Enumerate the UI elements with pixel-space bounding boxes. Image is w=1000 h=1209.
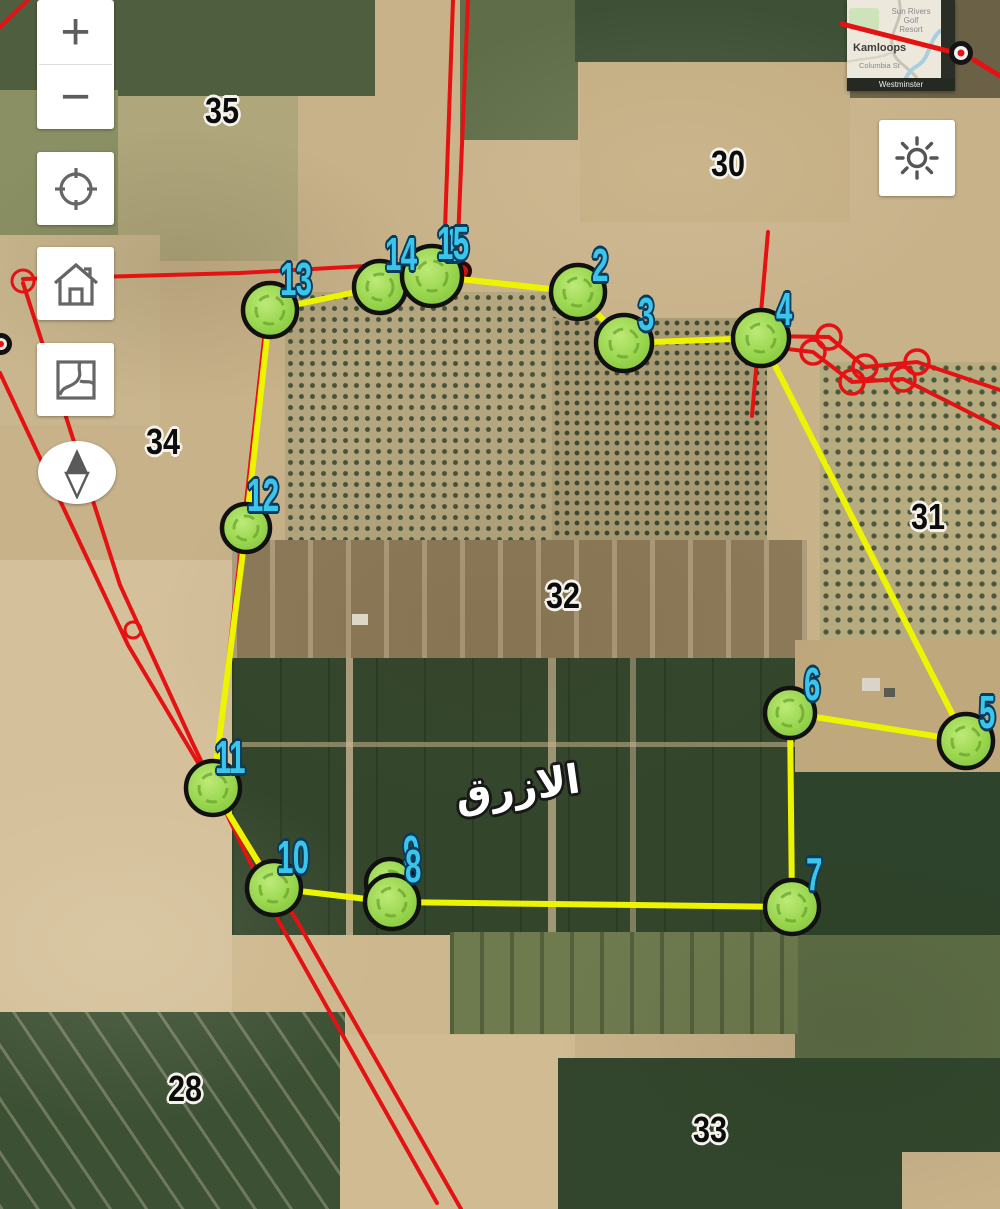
vertex-number-labels: 234567981011121314115 <box>0 0 1000 1209</box>
compass[interactable] <box>38 441 116 504</box>
map-canvas[interactable]: Sun Rivers GolfResort Kamloops Columbia … <box>0 0 1000 1209</box>
vertex-label-12: 12 <box>247 474 278 518</box>
vertex-label-8: 8 <box>405 845 421 889</box>
vertex-label-11: 11 <box>215 736 245 780</box>
zoom-in-button[interactable]: + <box>37 0 114 64</box>
zoom-out-button[interactable]: − <box>37 65 114 129</box>
vertex-label-5: 5 <box>979 691 995 735</box>
minus-icon: − <box>60 67 90 127</box>
basemap-toggle-button[interactable] <box>37 343 114 416</box>
vertex-label-3: 3 <box>638 293 654 337</box>
vertex-label-7: 7 <box>806 853 822 897</box>
sun-icon <box>891 132 943 184</box>
map-icon <box>53 357 99 403</box>
brightness-button[interactable] <box>879 120 955 196</box>
vertex-label-6: 6 <box>804 663 820 707</box>
vertex-label-4: 4 <box>776 288 792 332</box>
home-icon <box>51 261 101 307</box>
locate-button[interactable] <box>37 152 114 225</box>
crosshair-icon <box>52 165 100 213</box>
vertex-label-15: 15 <box>437 222 468 266</box>
plus-icon: + <box>60 2 90 62</box>
vertex-label-2: 2 <box>592 244 608 288</box>
zoom-control: + − <box>37 0 114 129</box>
vertex-label-14: 14 <box>385 233 416 277</box>
vertex-label-13: 13 <box>280 258 311 302</box>
vertex-label-10: 10 <box>277 836 308 880</box>
home-button[interactable] <box>37 247 114 320</box>
compass-needle-icon <box>62 447 92 499</box>
